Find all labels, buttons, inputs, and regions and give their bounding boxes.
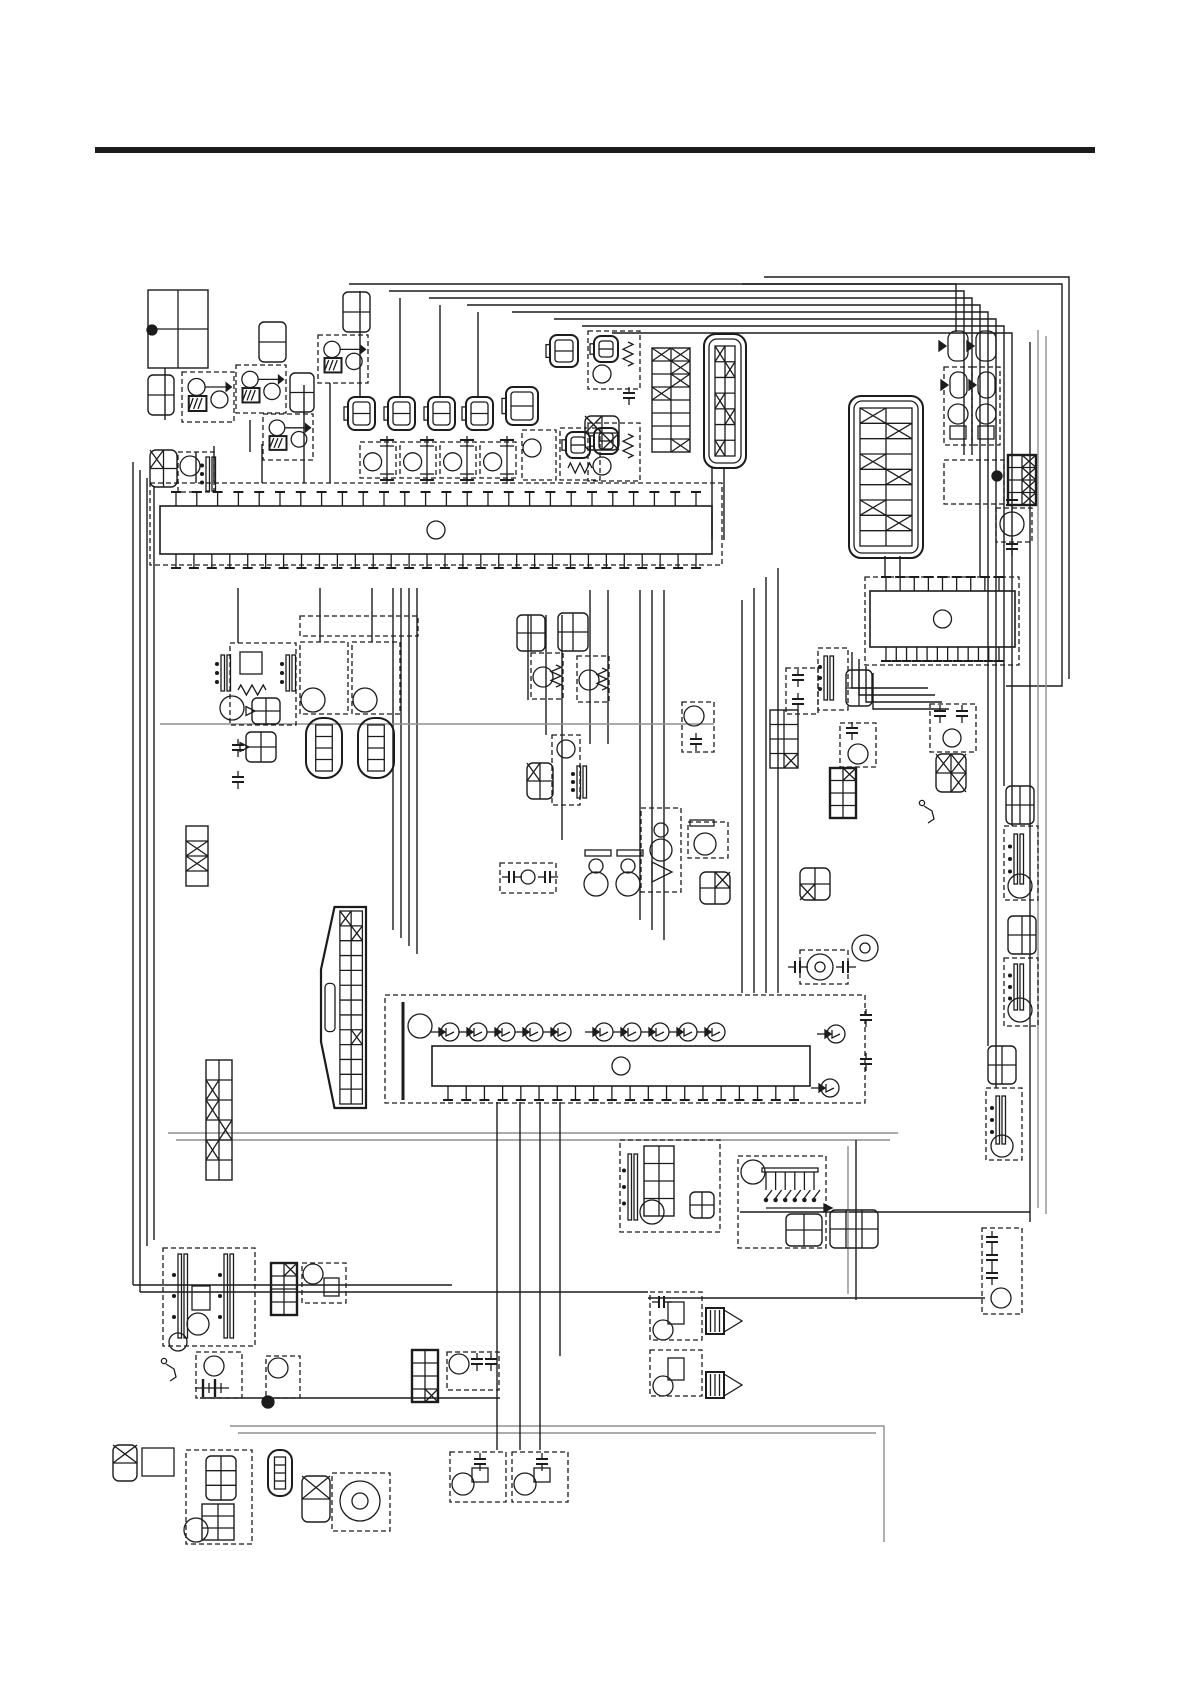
relay [263,414,313,460]
turn-signal-lamp [706,1372,742,1398]
joint-connector [186,826,208,886]
terminal-bar [219,1254,234,1338]
lamp-box [996,508,1032,542]
connector-bold [271,1263,297,1315]
wire [873,673,949,709]
bulb [303,1264,323,1284]
capacitor [792,669,804,687]
connector-x [936,754,966,792]
spark-plug-2 [400,436,436,484]
indicator-led [459,1023,487,1041]
bulb [204,1356,224,1376]
terminal-bar [201,457,216,491]
bulb [187,1313,209,1335]
connector [206,1456,236,1500]
switch-box [1004,826,1038,900]
sender-box [552,735,580,805]
flasher-box [650,1350,702,1396]
capacitor [538,871,558,883]
bulb [268,1358,288,1378]
bulb [694,833,716,855]
pressure-sensor [807,954,833,980]
ignition-coil-connector-4 [462,397,493,430]
terminal-bar [623,1154,638,1220]
connector [846,670,872,706]
pump-symbol [652,862,672,882]
bulb [991,1288,1011,1308]
relay-switch [941,372,967,398]
capacitor [836,961,856,973]
node [147,325,157,335]
bulb [593,457,611,475]
terminal-bar [173,1254,188,1338]
wire [512,312,988,1046]
connector [246,732,276,762]
connector-x [700,872,730,904]
connector [268,1450,292,1496]
ecu-coupler-b [849,396,923,558]
bulb [616,872,640,896]
indicator-led [811,1079,839,1097]
terminal-bar [281,655,296,691]
component-box [668,1302,684,1324]
capacitor [860,1053,872,1071]
terminal-bar [991,1096,1006,1144]
capacitor [232,739,244,757]
sensor-connector [358,718,394,778]
bulb [948,404,968,424]
wiring-diagram-page [0,0,1190,1684]
terminal [585,850,611,856]
indicator-led [515,1023,543,1041]
resistor [623,342,633,366]
terminal [617,850,643,856]
ecu-box [150,483,722,565]
connector [259,322,286,362]
indicator-led [585,1023,613,1041]
connector [343,292,370,332]
resistor [623,434,633,458]
connector [770,710,798,768]
connector [148,375,174,415]
connector-bold [830,768,856,818]
battery [195,1379,229,1397]
bulb [452,1473,474,1495]
coil [562,432,590,458]
sensor-box [688,822,728,858]
connector [290,373,314,412]
meter-assembly-box [385,995,865,1103]
indicator-led [613,1023,641,1041]
horn-box [332,1473,390,1531]
bulb [533,667,553,687]
connector [690,1192,714,1218]
starter-relay-box [163,1248,255,1346]
capacitor [623,387,635,405]
ecu-main [160,492,712,568]
sensor-connector [306,718,342,778]
relay [236,365,286,413]
wire [429,298,972,455]
component-box [668,1358,684,1380]
capacitor [986,1267,998,1285]
bulb [514,1473,536,1495]
bulb [521,870,535,884]
ecu-secondary [870,577,1015,661]
connector-x [150,450,177,487]
connector [988,1046,1016,1084]
ignition-switch-contacts [762,1168,832,1212]
ignition-coil-connector-1 [344,397,375,430]
component-box [142,1448,174,1476]
capacitor [485,1353,497,1371]
capacitor [846,722,858,740]
spark-plug-4 [480,436,516,484]
terminal-bar [572,766,587,798]
wire [866,666,942,702]
main-harness-connector [321,907,366,1108]
coil [590,336,618,362]
connector-x [800,868,830,900]
bulb [943,729,961,747]
bulb [301,688,325,712]
sensor-box [944,460,1004,504]
connector-x [113,1445,137,1481]
indicator-led [487,1023,515,1041]
indicator-led [669,1023,697,1041]
indicator-led [817,1025,845,1043]
bulb [584,872,608,896]
relay-switch [969,372,995,398]
indicator-led [431,1023,459,1041]
terminal-bar [216,655,231,691]
capacitor [986,1231,998,1249]
connector-bold [412,1350,438,1402]
diode-arrow [246,707,255,716]
bulb [353,688,377,712]
capacitor [471,1353,483,1371]
bulb [184,1518,208,1542]
bulb [523,439,541,457]
fuel-pump-box [641,808,681,892]
connector-x [527,763,553,799]
relay-unit-box [186,1450,252,1544]
capacitor [788,961,808,973]
connector [830,1210,878,1248]
node [992,471,1002,481]
ecu-coupler-a [704,334,746,468]
bulb [621,859,635,873]
bulb [654,823,668,837]
capacitor [792,693,804,711]
relay [182,372,234,422]
solenoid-box [531,653,563,699]
horn [340,1481,380,1521]
meter-assembly [432,1046,810,1100]
wire [764,277,1069,679]
bulb [589,859,603,873]
terminal-bar [819,656,834,700]
coil-connector [546,335,578,367]
connector [644,1146,674,1216]
ignition-switch-box [738,1156,826,1248]
joint-connector [652,348,690,452]
injector-connector [502,387,538,425]
capacitor [860,1009,872,1027]
capacitor [232,771,244,789]
wiring-diagram-svg [0,0,1190,1684]
connector [786,1214,822,1246]
bulb [650,839,672,861]
joint-connector [206,1060,232,1180]
bulb [579,670,599,690]
ignition-coil-connector-2 [384,397,415,430]
ground [161,1358,176,1381]
indicator-led [641,1023,669,1041]
bulb [653,1320,673,1340]
relay-coil [192,1286,210,1310]
resistor [238,685,266,695]
relay-box [944,367,972,445]
cap-box [840,723,876,767]
capacitor [934,705,946,723]
connector [517,615,545,651]
taillight-connector [302,1476,330,1522]
indicator-led [543,1023,571,1041]
capacitor [502,871,522,883]
terminal-bar [1009,834,1024,884]
indicator-led [697,1023,725,1041]
bulb [593,365,611,383]
meter-bulb [408,1014,432,1038]
bulb [848,744,868,764]
bulb [449,1354,469,1374]
spark-plug-3 [440,436,476,484]
connector [1008,916,1036,954]
node [262,1396,274,1408]
capacitor [986,1249,998,1267]
wire [230,1426,884,1542]
bulb [684,706,704,726]
bulb [220,696,244,720]
terminal [690,820,714,826]
speed-sensor [852,935,878,961]
bulb [976,404,996,424]
capacitor [956,705,968,723]
bulb [180,456,200,476]
flasher-box [650,1292,702,1340]
capacitor [690,733,702,751]
component-box [324,1278,339,1296]
turn-signal-lamp [706,1308,742,1334]
component-box [240,652,262,674]
wire [612,333,1012,826]
bulb [557,740,575,758]
ground [919,800,934,823]
ignition-coil-connector-3 [424,397,455,430]
solenoid-box [577,656,609,702]
spark-plug-1 [360,436,396,484]
cap-box [982,1228,1022,1314]
bulb [653,1376,673,1396]
